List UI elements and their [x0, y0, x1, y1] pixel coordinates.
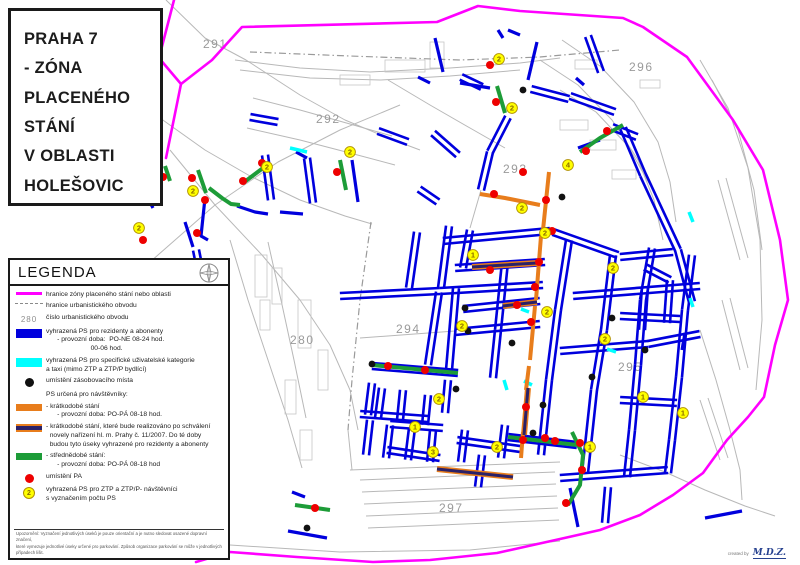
pa-marker — [542, 196, 550, 204]
supply-point-marker — [642, 347, 649, 354]
legend-item-text: - krátkodobé stání, které bude realizová… — [46, 423, 210, 449]
ztp-badge-count: 2 — [497, 55, 501, 64]
urban-district-boundary — [250, 50, 620, 60]
resident-parking-segment — [310, 158, 316, 203]
specific-category-segment — [504, 380, 507, 390]
legend-swatch-orange-bar — [12, 403, 46, 411]
pa-marker — [576, 439, 584, 447]
district-number: 297 — [439, 501, 464, 515]
ztp-badge-count: 2 — [545, 308, 549, 317]
legend-swatch-orange-dark-bar — [12, 423, 46, 432]
paid-zone-boundary — [166, 84, 181, 158]
map-page: 2912922962932802942952972222224221222211… — [0, 0, 800, 565]
ztp-badge-count: 1 — [413, 423, 417, 432]
pa-marker — [421, 366, 429, 374]
legend-item: umístění PA — [12, 473, 224, 483]
mid-term-parking-segment — [340, 160, 346, 190]
specific-category-segment — [521, 309, 529, 312]
base-street — [230, 240, 302, 468]
ztp-badge-count: 1 — [641, 393, 645, 402]
supply-point-marker — [540, 402, 547, 409]
map-title-line: PRAHA 7 — [24, 25, 154, 54]
base-street — [700, 330, 742, 500]
resident-parking-segment — [340, 288, 440, 293]
resident-parking-segment — [555, 240, 566, 310]
base-street — [368, 520, 559, 528]
legend-item: 2vyhrazená PS pro ZTP a ZTP/P- návštěvní… — [12, 486, 224, 503]
legend-swatch-black-dot — [12, 377, 46, 387]
base-street — [150, 105, 400, 262]
legend-header: LEGENDA — [10, 260, 228, 286]
resident-parking-segment — [620, 249, 673, 254]
building-outline — [285, 380, 296, 414]
base-street — [620, 455, 775, 516]
supply-point-marker — [462, 305, 469, 312]
map-title-line: HOLEŠOVIC — [24, 172, 154, 201]
pa-marker — [193, 229, 201, 237]
pa-marker — [531, 283, 539, 291]
specific-category-segment — [689, 212, 693, 222]
legend-item: vyhrazená PS pro rezidenty a abonenty - … — [12, 328, 224, 354]
pa-marker — [201, 196, 209, 204]
resident-parking-segment — [280, 212, 303, 214]
base-street — [722, 300, 740, 370]
resident-parking-segment — [644, 270, 669, 283]
resident-parking-segment — [496, 330, 501, 378]
ztp-badge-count: 2 — [543, 229, 547, 238]
building-outline — [255, 255, 267, 297]
resident-parking-segment — [403, 390, 406, 420]
ztp-badge-count: 2 — [460, 322, 464, 331]
ztp-badge-count: 1 — [681, 409, 685, 418]
district-number: 291 — [203, 37, 228, 51]
resident-parking-segment — [585, 37, 598, 73]
resident-parking-segment — [561, 240, 572, 310]
resident-parking-segment — [425, 292, 436, 365]
resident-parking-segment — [288, 531, 327, 538]
district-number: 292 — [316, 112, 341, 126]
pa-marker — [139, 236, 147, 244]
ztp-badge-count: 2 — [520, 204, 524, 213]
pa-marker — [492, 98, 500, 106]
resident-parking-segment — [365, 383, 369, 415]
pa-marker — [578, 466, 586, 474]
short-term-parking-segment — [480, 194, 540, 205]
pa-marker — [527, 318, 535, 326]
resident-parking-segment — [427, 430, 430, 462]
legend-item-text: umístění PA — [46, 473, 82, 482]
legend-title: LEGENDA — [18, 264, 97, 281]
base-street — [700, 60, 762, 390]
legend-item-text: hranice urbanistického obvodu — [46, 302, 137, 311]
resident-parking-segment — [383, 425, 387, 458]
building-outline — [318, 350, 328, 390]
base-street — [712, 80, 762, 250]
legend-swatch-yellow-badge: 2 — [12, 486, 46, 499]
legend-swatch-red-dot — [12, 473, 46, 483]
ztp-badge-count: 1 — [588, 443, 592, 452]
pa-marker — [582, 147, 590, 155]
pa-marker — [384, 362, 392, 370]
building-outline — [300, 430, 312, 460]
ztp-badge-count: 2 — [603, 335, 607, 344]
building-outline — [560, 120, 588, 130]
pa-marker — [522, 403, 530, 411]
resident-parking-segment — [552, 235, 617, 258]
resident-parking-segment — [490, 330, 495, 378]
legend-item-text: - krátkodobé stání - provozní doba: PO-P… — [46, 403, 162, 420]
resident-parking-segment — [237, 206, 268, 214]
legend-item: 280číslo urbanistického obvodu — [12, 314, 224, 324]
compass-icon — [198, 262, 220, 284]
resident-parking-segment — [671, 440, 675, 473]
legend-note: Upozornění: Vyznačení jednotlivých úseků… — [14, 529, 224, 558]
pa-marker — [333, 168, 341, 176]
pa-marker — [519, 436, 527, 444]
legend-swatch-number-280: 280 — [12, 314, 46, 324]
building-outline — [260, 300, 270, 330]
pa-marker — [239, 177, 247, 185]
pa-marker — [519, 168, 527, 176]
legend-item: - krátkodobé stání - provozní doba: PO-P… — [12, 403, 224, 420]
base-street — [718, 180, 740, 260]
district-number: 280 — [290, 333, 315, 347]
legend-item-text: umístění zásobovacího místa — [46, 377, 133, 386]
base-street — [730, 298, 748, 368]
resident-parking-segment — [440, 282, 543, 288]
resident-parking-segment — [304, 158, 310, 203]
legend-item-text: PS určená pro návštěvníky: — [46, 391, 128, 400]
pa-marker — [486, 266, 494, 274]
ztp-badge-count: 2 — [191, 187, 195, 196]
legend-swatch-blue-bar — [12, 328, 46, 338]
legend-swatch-green-bar — [12, 452, 46, 460]
legend-item: hranice urbanistického obvodu — [12, 302, 224, 311]
ztp-badge-count: 2 — [510, 104, 514, 113]
resident-parking-segment — [292, 492, 305, 497]
resident-parking-segment — [369, 420, 373, 455]
map-title-line: PLACENÉHO — [24, 84, 154, 113]
supply-point-marker — [453, 386, 460, 393]
supply-point-marker — [520, 87, 527, 94]
pa-marker — [311, 504, 319, 512]
resident-parking-segment — [431, 292, 442, 365]
resident-parking-segment — [620, 403, 677, 406]
supply-point-marker — [589, 374, 596, 381]
legend-item-text: vyhrazená PS pro specifické uživatelské … — [46, 357, 195, 374]
legend-item: vyhrazená PS pro specifické uživatelské … — [12, 357, 224, 374]
legend-item-text: číslo urbanistického obvodu — [46, 314, 129, 323]
legend-item: PS určená pro návštěvníky: — [12, 391, 224, 400]
resident-parking-segment — [602, 487, 605, 523]
resident-parking-segment — [641, 300, 646, 365]
resident-parking-segment — [249, 120, 277, 125]
base-street — [470, 190, 481, 228]
resident-parking-segment — [428, 395, 431, 425]
credit: created by M.D.Z. — [728, 548, 786, 559]
resident-parking-segment — [417, 191, 436, 204]
credit-prefix: created by — [728, 551, 749, 556]
resident-parking-segment — [421, 187, 440, 200]
supply-point-marker — [304, 525, 311, 532]
ztp-badge-count: 2 — [437, 395, 441, 404]
base-street — [708, 398, 728, 458]
resident-parking-segment — [411, 428, 415, 460]
ztp-badge-count: 3 — [431, 448, 435, 457]
map-title-line: V OBLASTI — [24, 142, 154, 171]
building-outline — [640, 80, 660, 88]
legend-item: - krátkodobé stání, které bude realizová… — [12, 423, 224, 449]
short-term-parking-segment — [526, 366, 529, 390]
base-street — [362, 484, 556, 492]
legend-box: LEGENDA hranice zóny placeného stání neb… — [8, 258, 230, 560]
district-number: 296 — [629, 60, 654, 74]
resident-parking-segment — [676, 310, 682, 377]
pa-marker — [551, 437, 559, 445]
supply-point-marker — [369, 361, 376, 368]
resident-parking-segment — [498, 30, 503, 38]
resident-parking-segment — [498, 425, 502, 458]
supply-point-marker — [509, 340, 516, 347]
resident-parking-segment — [340, 294, 440, 299]
legend-item: hranice zóny placeného stání nebo oblast… — [12, 291, 224, 300]
resident-parking-segment — [640, 176, 675, 251]
pa-marker — [490, 190, 498, 198]
resident-parking-segment — [508, 30, 520, 35]
supply-point-marker — [609, 315, 616, 322]
resident-parking-segment — [635, 300, 640, 365]
resident-parking-segment — [464, 430, 468, 462]
legend-swatch-dash-line — [12, 302, 46, 304]
ztp-badge-count: 2 — [137, 224, 141, 233]
pa-marker — [486, 61, 494, 69]
district-number: 294 — [396, 322, 421, 336]
resident-parking-segment — [422, 395, 425, 425]
credit-logo: M.D.Z. — [753, 548, 786, 559]
resident-parking-segment — [251, 114, 279, 119]
base-street — [700, 400, 720, 460]
legend-swatch-magenta-line — [12, 291, 46, 295]
supply-point-marker — [530, 430, 537, 437]
resident-parking-segment — [608, 487, 611, 523]
legend-swatch-cyan-bar — [12, 357, 46, 367]
map-title-line: - ZÓNA — [24, 54, 154, 83]
legend-item-text: vyhrazená PS pro rezidenty a abonenty - … — [46, 328, 164, 354]
base-street — [348, 430, 352, 470]
resident-parking-segment — [458, 430, 462, 462]
legend-items: hranice zóny placeného stání nebo oblast… — [10, 286, 228, 527]
ztp-badge-count: 2 — [348, 148, 352, 157]
resident-parking-segment — [435, 38, 443, 72]
district-number: 295 — [618, 360, 643, 374]
resident-parking-segment — [268, 155, 274, 200]
resident-parking-segment — [371, 383, 375, 415]
resident-parking-segment — [646, 174, 681, 249]
map-title-line: STÁNÍ — [24, 113, 154, 142]
legend-item: umístění zásobovacího místa — [12, 377, 224, 387]
legend-item: - střednědobé stání: - provozní doba: PO… — [12, 452, 224, 469]
legend-swatch-none — [12, 391, 46, 392]
resident-parking-segment — [448, 380, 451, 413]
short-term-parking-segment — [530, 306, 535, 360]
map-title-box: PRAHA 7- ZÓNAPLACENÉHOSTÁNÍV OBLASTIHOLE… — [8, 8, 163, 206]
resident-parking-segment — [705, 511, 742, 518]
ztp-badge-count: 1 — [471, 251, 475, 260]
legend-item-text: - střednědobé stání: - provozní doba: PO… — [46, 452, 160, 469]
resident-parking-segment — [504, 425, 508, 458]
supply-point-marker — [559, 194, 566, 201]
pa-marker — [541, 434, 549, 442]
pa-marker — [535, 258, 543, 266]
specific-category-segment — [690, 298, 693, 307]
pa-marker — [562, 499, 570, 507]
resident-parking-segment — [440, 288, 543, 294]
resident-parking-segment — [363, 420, 367, 455]
ztp-badge-count: 2 — [495, 443, 499, 452]
base-street — [726, 178, 748, 258]
legend-item-text: hranice zóny placeného stání nebo oblast… — [46, 291, 171, 300]
legend-item-text: vyhrazená PS pro ZTP a ZTP/P- návštěvníc… — [46, 486, 177, 503]
pa-marker — [513, 301, 521, 309]
short-term-parking-segment — [521, 432, 523, 458]
building-outline — [612, 170, 636, 179]
resident-parking-segment — [352, 160, 358, 202]
pa-marker — [188, 174, 196, 182]
ztp-badge-count: 2 — [611, 264, 615, 273]
resident-parking-segment — [201, 198, 208, 240]
ztp-badge-count: 2 — [265, 163, 269, 172]
pa-marker — [603, 127, 611, 135]
